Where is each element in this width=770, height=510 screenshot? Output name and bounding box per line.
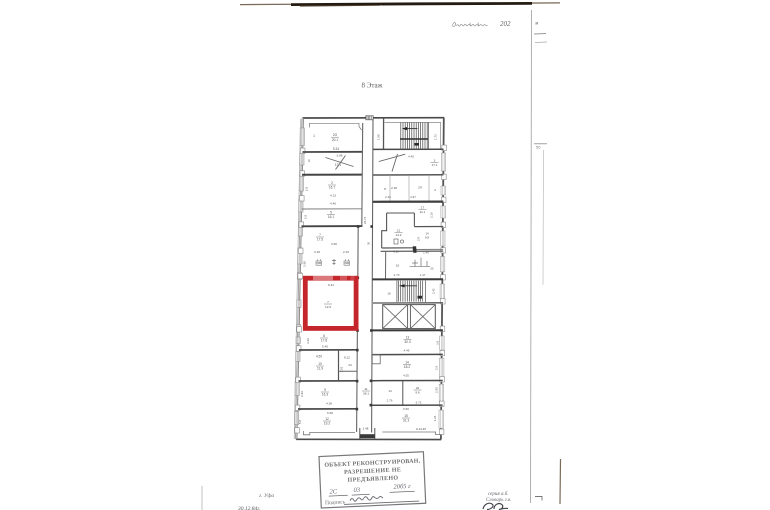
svg-text:14: 14 <box>388 389 392 393</box>
svg-text:12.9: 12.9 <box>325 305 331 309</box>
svg-text:2.90: 2.90 <box>435 387 439 393</box>
svg-text:2О: 2О <box>333 133 338 137</box>
svg-text:16.1: 16.1 <box>328 215 334 219</box>
svg-text:2: 2 <box>331 181 333 185</box>
svg-text:ОБЪЕКТ РЕКОНСТРУИРОВАН,: ОБЪЕКТ РЕКОНСТРУИРОВАН, <box>324 458 420 468</box>
svg-text:12: 12 <box>397 229 401 233</box>
svg-text:11: 11 <box>364 387 367 391</box>
svg-text:3.42: 3.42 <box>306 338 310 344</box>
svg-text:2.76: 2.76 <box>387 399 393 403</box>
svg-text:1.48: 1.48 <box>363 427 369 431</box>
svg-text:4.24: 4.24 <box>433 415 437 421</box>
svg-text:4.13: 4.13 <box>330 194 336 198</box>
svg-text:9-13-45: 9-13-45 <box>416 427 426 431</box>
svg-text:03: 03 <box>353 487 361 494</box>
svg-text:14: 14 <box>405 361 409 365</box>
svg-text:1.47: 1.47 <box>420 273 426 277</box>
svg-text:17: 17 <box>421 206 425 210</box>
svg-text:11.1: 11.1 <box>420 210 426 214</box>
svg-text:2.46: 2.46 <box>385 195 391 199</box>
svg-text:16: 16 <box>387 292 391 296</box>
svg-text:20б5 г: 20б5 г <box>393 483 411 491</box>
svg-text:18.2: 18.2 <box>404 365 410 369</box>
svg-text:24: 24 <box>348 363 352 367</box>
svg-text:17.1: 17.1 <box>431 163 437 167</box>
svg-text:9.8: 9.8 <box>415 391 420 395</box>
svg-text:2.18: 2.18 <box>391 186 397 190</box>
svg-text:8: 8 <box>384 187 386 191</box>
svg-text:5.72: 5.72 <box>416 401 422 405</box>
svg-text:16.7: 16.7 <box>329 186 335 190</box>
svg-text:36.1: 36.1 <box>363 392 369 396</box>
svg-text:30.3: 30.3 <box>404 340 410 344</box>
svg-text:8.12: 8.12 <box>344 356 350 360</box>
svg-text:15: 15 <box>404 414 408 418</box>
svg-text:2.70: 2.70 <box>394 273 400 277</box>
svg-text:17.5: 17.5 <box>317 238 323 242</box>
svg-text:2С: 2С <box>329 488 338 495</box>
svg-text:2.23: 2.23 <box>343 250 349 254</box>
svg-text:4.50: 4.50 <box>316 355 322 359</box>
svg-text:10: 10 <box>318 362 322 366</box>
svg-text:4.38: 4.38 <box>326 402 332 406</box>
svg-text:6.41: 6.41 <box>328 283 334 287</box>
svg-text:5.40: 5.40 <box>322 345 328 349</box>
svg-text:17.8: 17.8 <box>321 339 327 343</box>
svg-text:50: 50 <box>536 145 541 150</box>
svg-text:1.98: 1.98 <box>377 134 381 140</box>
svg-text:5: 5 <box>308 159 310 163</box>
svg-text:3.8: 3.8 <box>436 340 440 345</box>
svg-text:16.3: 16.3 <box>322 393 328 397</box>
svg-text:3.60: 3.60 <box>331 242 337 246</box>
svg-text:22: 22 <box>416 386 420 390</box>
svg-text:2.9: 2.9 <box>305 187 309 192</box>
svg-text:30.12.84г.: 30.12.84г. <box>237 505 261 510</box>
svg-text:202: 202 <box>500 20 511 28</box>
svg-text:8 Этаж: 8 Этаж <box>362 82 383 90</box>
svg-text:5.8: 5.8 <box>298 420 302 425</box>
svg-text:м: м <box>534 22 539 27</box>
svg-text:2.9: 2.9 <box>435 365 439 370</box>
svg-text:3.18: 3.18 <box>314 250 320 254</box>
svg-text:6.50: 6.50 <box>403 407 409 411</box>
svg-text:3.51: 3.51 <box>340 366 344 372</box>
svg-text:6: 6 <box>323 334 325 338</box>
svg-text:7: 7 <box>319 233 321 237</box>
svg-text:2П: 2П <box>418 186 422 190</box>
svg-text:ПРЕДЪЯВЛЕНО: ПРЕДЪЯВЛЕНО <box>347 475 398 483</box>
svg-text:2.88: 2.88 <box>303 261 307 267</box>
svg-text:1.73: 1.73 <box>434 134 438 140</box>
svg-text:3: 3 <box>434 159 436 163</box>
svg-text:9: 9 <box>324 388 326 392</box>
svg-text:12: 12 <box>325 417 329 421</box>
svg-text:РАЗРЕШЕНИЕ НЕ: РАЗРЕШЕНИЕ НЕ <box>344 467 401 476</box>
svg-text:14.2: 14.2 <box>395 233 401 237</box>
svg-text:1: 1 <box>313 134 315 138</box>
svg-text:4.97: 4.97 <box>410 195 416 199</box>
svg-text:19.2: 19.2 <box>324 422 330 426</box>
svg-text:2.9: 2.9 <box>304 215 308 220</box>
svg-text:4.46: 4.46 <box>330 202 336 206</box>
svg-text:20.1: 20.1 <box>332 138 338 142</box>
svg-text:7: 7 <box>327 300 329 304</box>
svg-text:Подпись: Подпись <box>325 499 346 506</box>
svg-text:11.9: 11.9 <box>317 367 323 371</box>
svg-text:4.40: 4.40 <box>408 155 414 159</box>
svg-text:9.8: 9.8 <box>425 236 430 240</box>
svg-text:5.34: 5.34 <box>333 147 339 151</box>
svg-text:4.46: 4.46 <box>404 349 410 353</box>
svg-text:2.42: 2.42 <box>432 288 436 294</box>
svg-text:Словарь г.в.: Словарь г.в. <box>486 498 511 503</box>
svg-text:26.71: 26.71 <box>363 216 367 224</box>
svg-text:2.9: 2.9 <box>417 237 421 241</box>
svg-text:серия а.б.: серия а.б. <box>488 492 508 497</box>
svg-text:31.3: 31.3 <box>403 419 409 423</box>
svg-text:05: 05 <box>431 267 435 271</box>
svg-text:2.93: 2.93 <box>300 391 304 397</box>
svg-text:г. Уфа: г. Уфа <box>259 492 274 499</box>
svg-text:4.55: 4.55 <box>403 374 409 378</box>
svg-text:15: 15 <box>396 264 400 268</box>
svg-text:4: 4 <box>434 188 436 192</box>
svg-text:5: 5 <box>330 211 332 215</box>
svg-text:6.50: 6.50 <box>327 411 333 415</box>
svg-text:30: 30 <box>367 241 371 245</box>
svg-text:-2.88: -2.88 <box>336 154 343 158</box>
svg-text:2.16: 2.16 <box>430 212 434 218</box>
svg-text:13: 13 <box>406 336 410 340</box>
